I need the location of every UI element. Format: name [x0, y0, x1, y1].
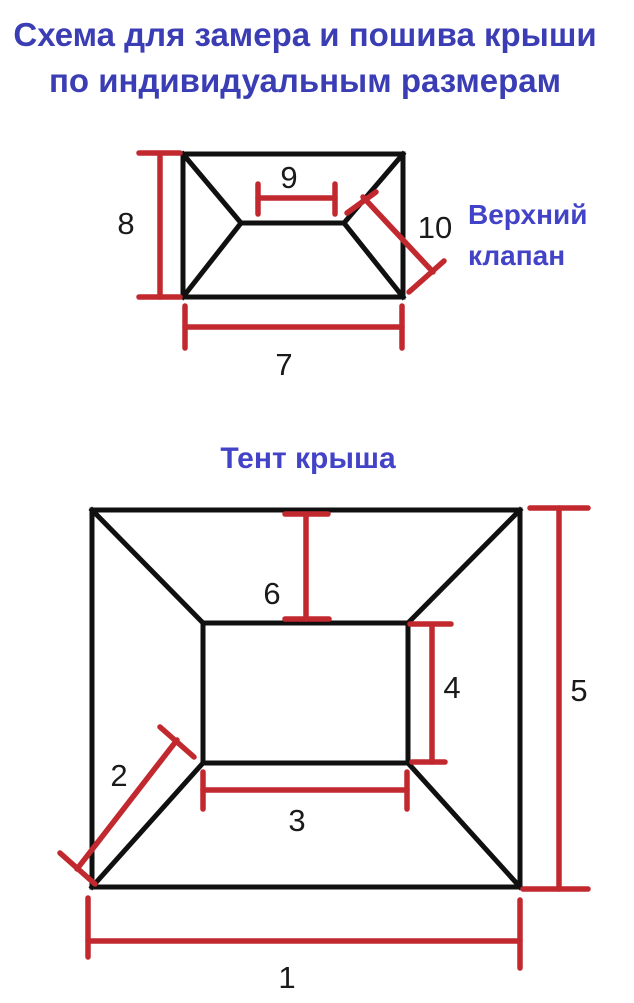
dim-label-3: 3 — [288, 803, 305, 838]
tent-hip-line — [408, 763, 520, 887]
roof-diagrams-canvas: 8 9 10 7 — [0, 0, 634, 1003]
dim-label-7: 7 — [275, 347, 292, 382]
tent-inner-rectangle — [203, 623, 408, 763]
tent-dimension-1: 1 — [88, 898, 520, 995]
dim-label-1: 1 — [278, 960, 295, 995]
tent-dimension-6: 6 — [263, 514, 329, 619]
tent-hip-line — [408, 510, 520, 623]
tent-roof-heading: Тент крыша — [0, 442, 616, 476]
top-flap-label-line2: клапан — [468, 235, 587, 276]
tent-dimension-3: 3 — [203, 772, 407, 838]
top-roof-hip-line — [183, 154, 241, 223]
dim-label-8: 8 — [117, 206, 134, 241]
top-roof-hip-line — [183, 223, 241, 297]
tent-dimension-4: 4 — [410, 624, 461, 762]
dim-label-6: 6 — [263, 576, 280, 611]
dim-label-5: 5 — [570, 673, 587, 708]
dim-label-2: 2 — [110, 758, 127, 793]
top-dimension-7: 7 — [185, 306, 402, 382]
tent-dimension-2: 2 — [60, 727, 194, 884]
page: Схема для замера и пошива крыши по индив… — [0, 0, 634, 1003]
tent-dimension-5: 5 — [523, 508, 588, 889]
top-flap-label: Верхний клапан — [468, 194, 587, 276]
top-dimension-10: 10 — [347, 192, 452, 292]
top-roof-hip-line — [344, 154, 403, 223]
dim-label-4: 4 — [443, 670, 460, 705]
top-dimension-9: 9 — [258, 160, 335, 214]
dim-label-9: 9 — [280, 160, 297, 195]
top-dimension-8: 8 — [117, 153, 180, 297]
top-flap-label-line1: Верхний — [468, 194, 587, 235]
tent-hip-line — [92, 510, 203, 623]
dim-label-10: 10 — [418, 210, 452, 245]
